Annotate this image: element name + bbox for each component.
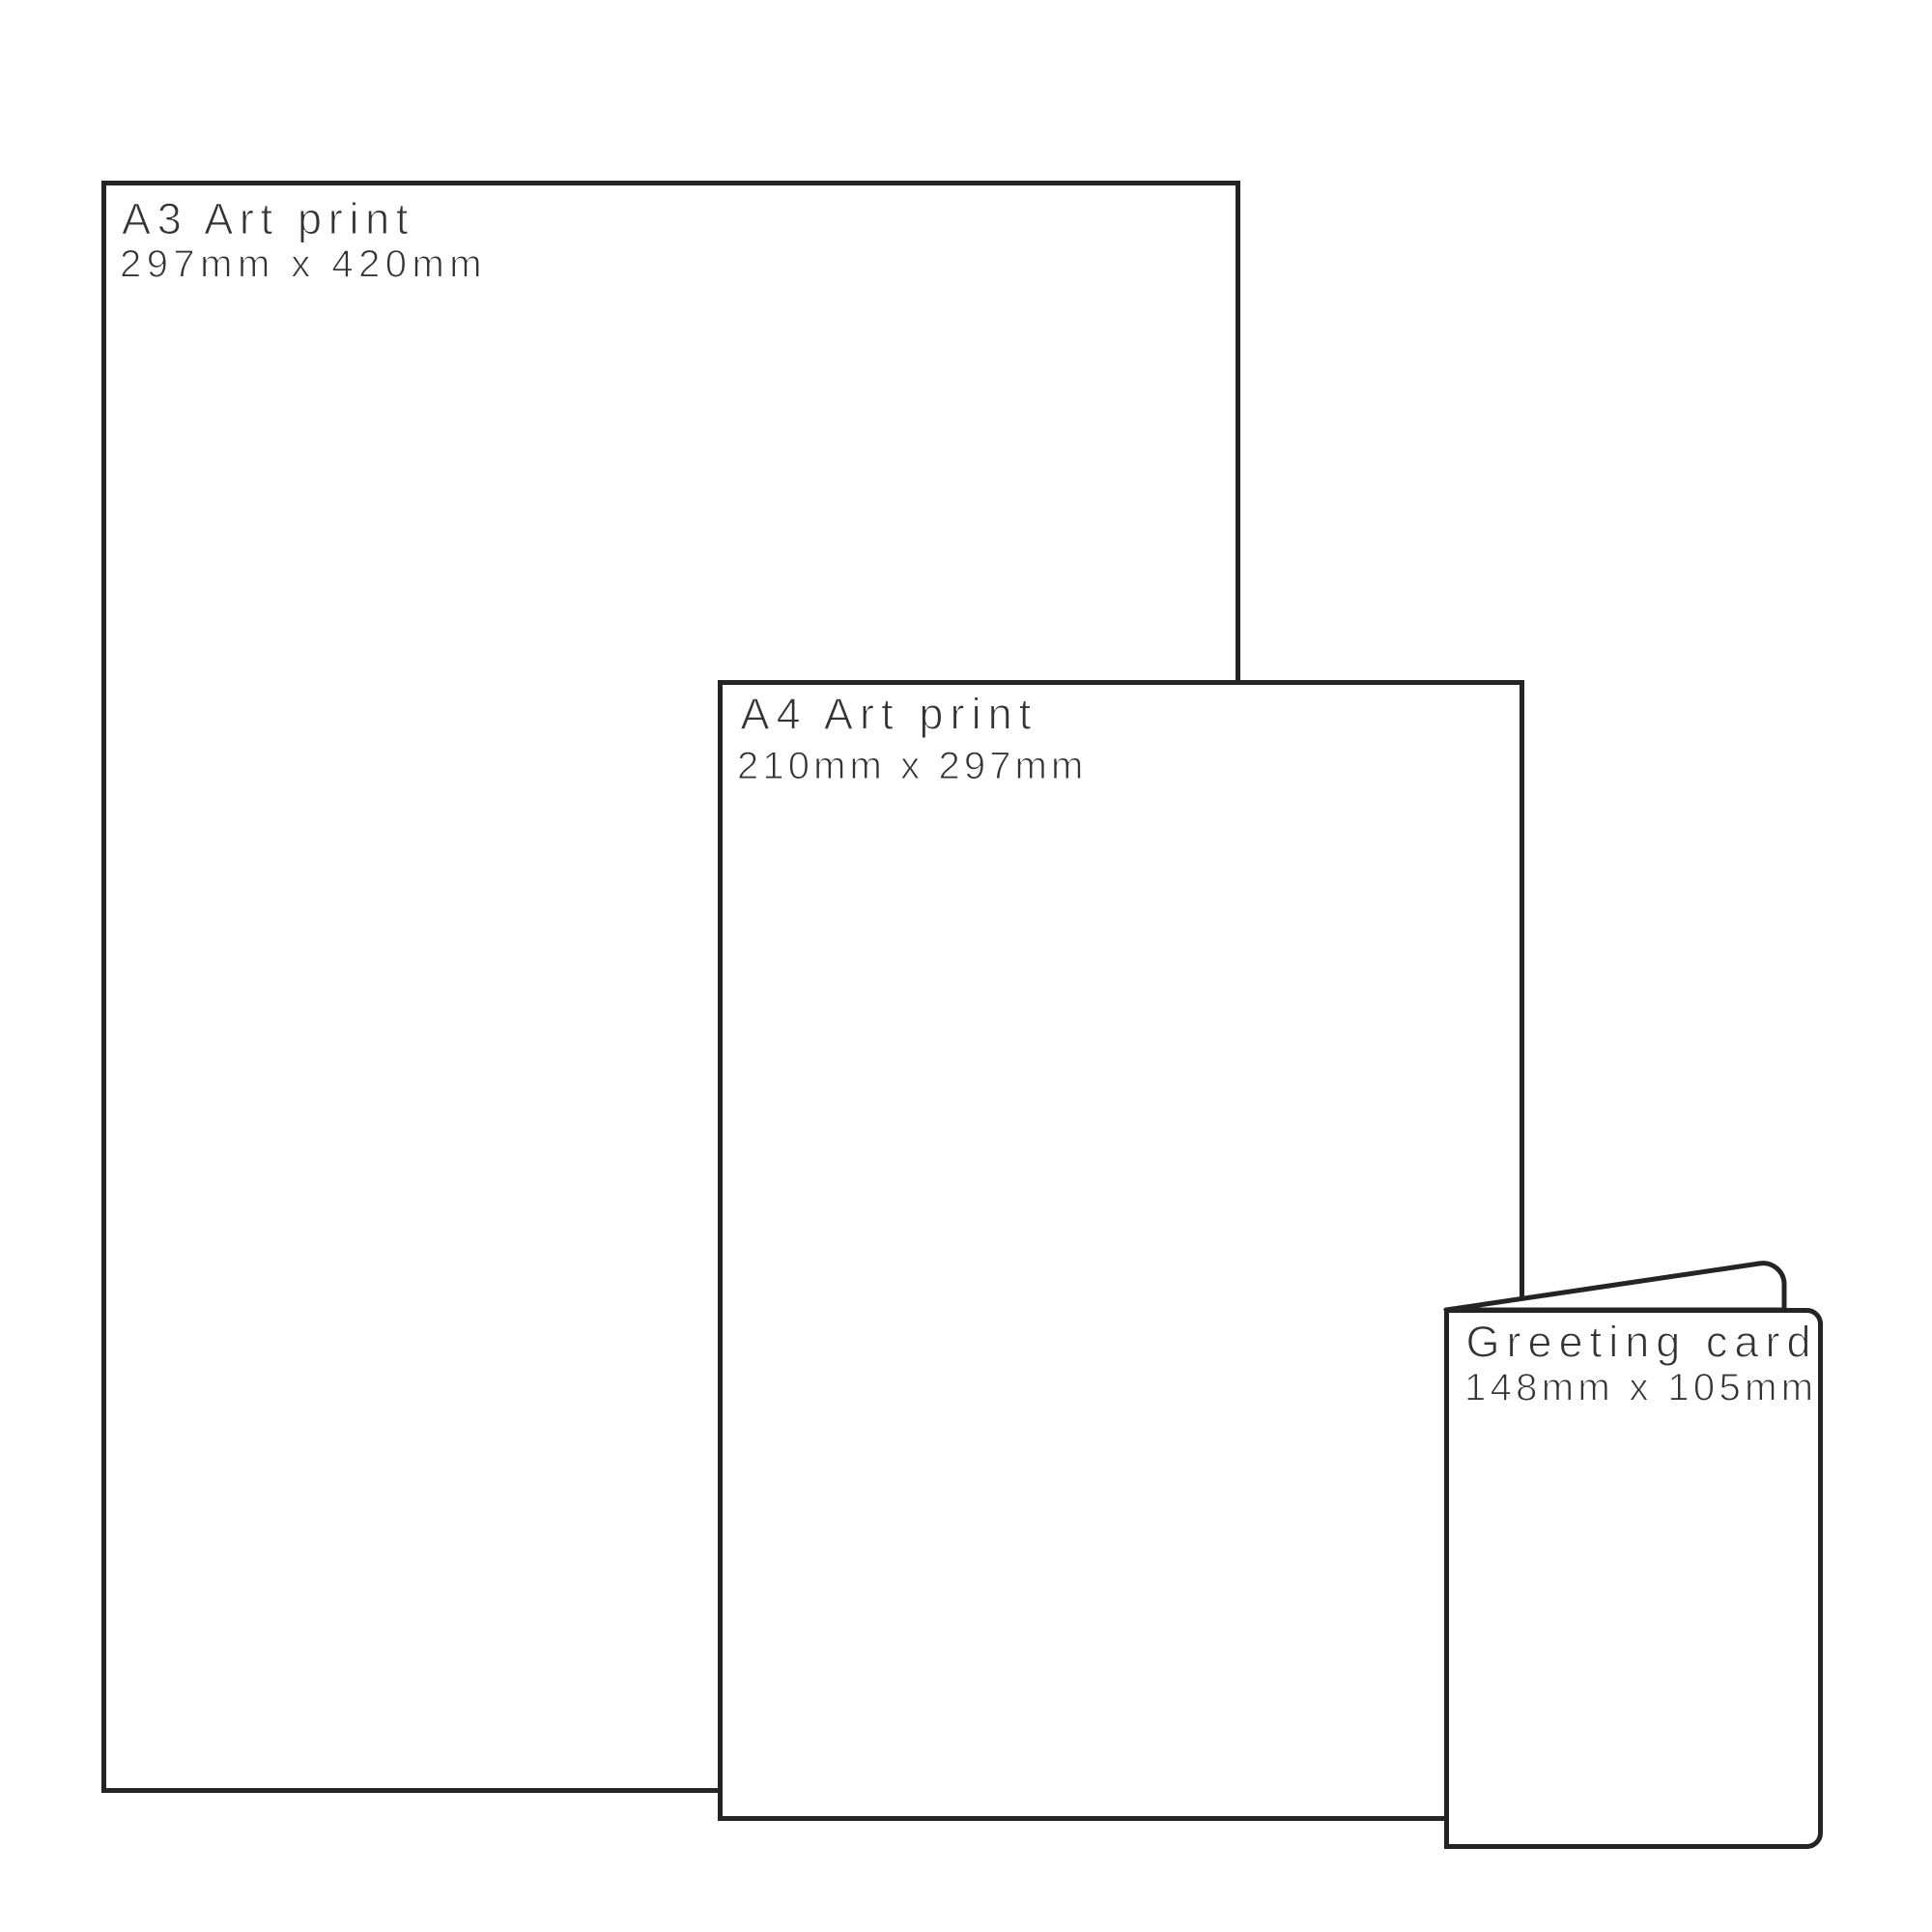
svg-text:210mm x 297mm: 210mm x 297mm bbox=[737, 745, 1087, 787]
svg-text:148mm x 105mm: 148mm x 105mm bbox=[1464, 1367, 1817, 1409]
svg-text:297mm x 420mm: 297mm x 420mm bbox=[120, 243, 487, 286]
svg-text:A3 Art print: A3 Art print bbox=[122, 194, 414, 243]
svg-text:Greeting card: Greeting card bbox=[1466, 1318, 1818, 1367]
svg-text:A4 Art print: A4 Art print bbox=[741, 690, 1038, 739]
